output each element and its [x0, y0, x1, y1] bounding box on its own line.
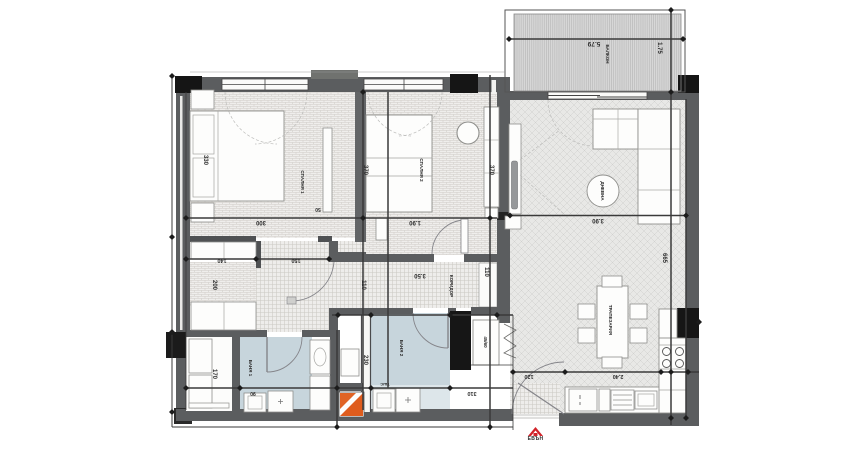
svg-text:300: 300 — [255, 219, 266, 225]
svg-text:170: 170 — [211, 369, 217, 380]
svg-text:200: 200 — [211, 280, 217, 291]
svg-text:3.90: 3.90 — [592, 217, 604, 223]
svg-text:2.40: 2.40 — [613, 373, 624, 379]
svg-text:310: 310 — [467, 390, 476, 396]
svg-text:КОРИДОР: КОРИДОР — [449, 275, 454, 297]
svg-text:230: 230 — [362, 355, 368, 366]
svg-text:1.75: 1.75 — [656, 42, 662, 54]
svg-text:90: 90 — [250, 390, 256, 396]
svg-text:ЕВЪН: ЕВЪН — [528, 436, 544, 442]
svg-text:5.79: 5.79 — [587, 40, 600, 47]
svg-text:370: 370 — [488, 165, 494, 176]
svg-text:50: 50 — [315, 206, 321, 212]
svg-text:150: 150 — [291, 257, 300, 263]
svg-text:110: 110 — [483, 267, 489, 277]
svg-text:БАНЯ 1: БАНЯ 1 — [248, 360, 253, 377]
svg-text:СПАЛНЯ 1: СПАЛНЯ 1 — [300, 170, 305, 194]
svg-text:120: 120 — [524, 373, 533, 379]
svg-text:370: 370 — [362, 165, 368, 176]
svg-text:330: 330 — [202, 155, 208, 166]
svg-text:45/60: 45/60 — [483, 336, 488, 348]
svg-text:1.90: 1.90 — [409, 219, 421, 225]
svg-text:3.50: 3.50 — [414, 272, 426, 278]
svg-text:ТШС: ТШС — [380, 382, 389, 387]
svg-text:140: 140 — [217, 257, 226, 263]
svg-text:ДНЕВНА: ДНЕВНА — [600, 181, 605, 201]
svg-text:ТРАПЕЗАРИЯ: ТРАПЕЗАРИЯ — [608, 305, 613, 335]
svg-text:БАЛКОН: БАЛКОН — [605, 44, 610, 63]
svg-text:БАНЯ 2: БАНЯ 2 — [399, 340, 404, 357]
svg-text:СПАЛНЯ 2: СПАЛНЯ 2 — [419, 158, 424, 182]
svg-text:110: 110 — [360, 280, 366, 290]
svg-text:665: 665 — [661, 253, 667, 264]
